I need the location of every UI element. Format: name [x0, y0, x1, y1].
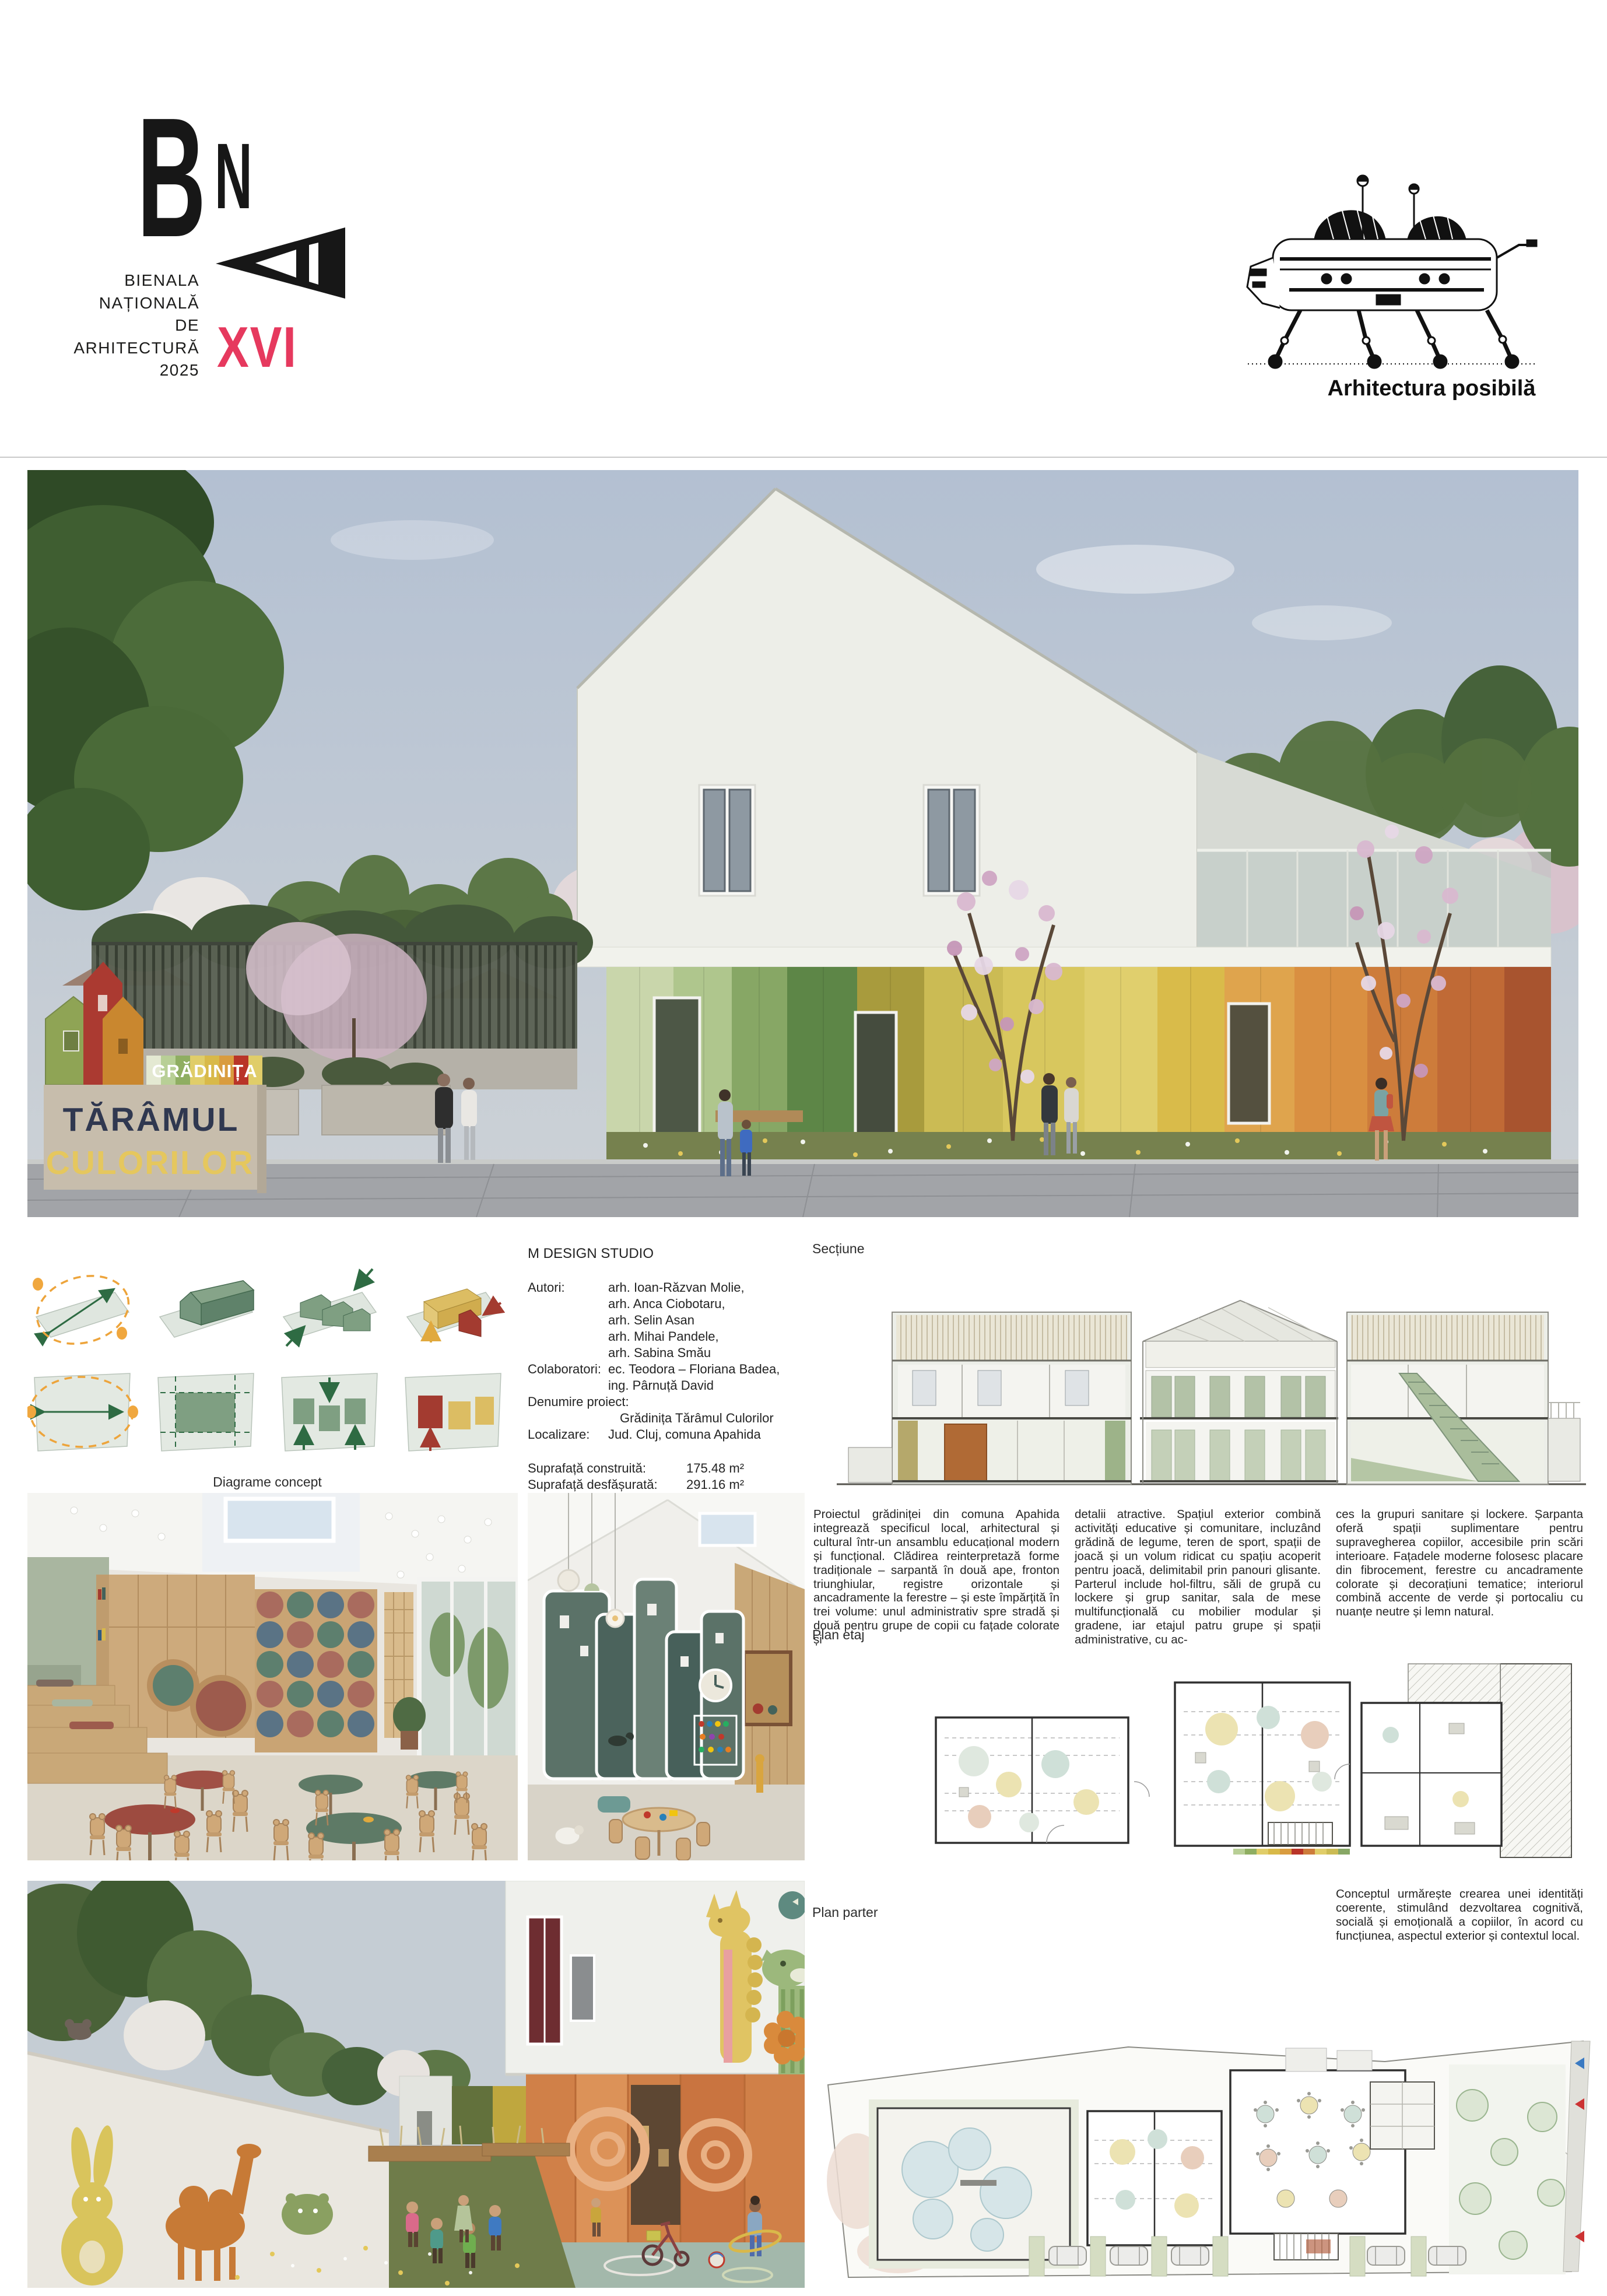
metric-label: Suprafață construită:	[528, 1460, 686, 1477]
diagram-axon-3	[283, 1269, 376, 1346]
biennale-line: NAȚIONALĂ	[70, 292, 199, 315]
biennale-line: DE	[70, 314, 199, 337]
authors-label: Autori:	[528, 1280, 608, 1361]
diagram-plan-2	[158, 1373, 254, 1451]
site-plan-caption: Plan parter	[812, 1905, 878, 1920]
floor-plan-caption: Plan etaj	[812, 1627, 865, 1643]
author: arh. Mihai Pandele,	[608, 1328, 811, 1345]
collaborators-label: Colaboratori:	[528, 1361, 608, 1394]
logo-letter-n: N	[215, 129, 252, 223]
location-value: Jud. Cluj, comuna Apahida	[608, 1426, 811, 1443]
location-label: Localizare:	[528, 1426, 608, 1443]
floor-plan-drawing	[907, 1647, 1583, 1875]
edition-number: XVI	[217, 318, 297, 376]
theme-caption: Arhitectura posibilă	[1286, 376, 1577, 401]
author: arh. Anca Ciobotaru,	[608, 1296, 811, 1312]
sign-culorilor: CULORILOR	[46, 1144, 254, 1182]
biennale-title: BIENALA NAȚIONALĂ DE ARHITECTURĂ 2025	[70, 269, 199, 382]
biennale-year: 2025	[70, 359, 199, 382]
planter-box	[369, 2146, 491, 2161]
collaborator: ing. Pârnuță David	[608, 1377, 811, 1394]
plan-colour-strip	[1233, 1849, 1350, 1855]
metric-value: 291.16 m²	[686, 1477, 744, 1493]
interior-render-playroom	[528, 1493, 805, 1860]
section-caption: Secțiune	[812, 1241, 865, 1257]
author: arh. Sabina Smău	[608, 1345, 811, 1361]
diagram-plan-4	[405, 1373, 501, 1451]
body-text-col3: ces la grupuri sanitare și lockere. Șarp…	[1336, 1508, 1583, 1619]
diagram-axon-1	[29, 1266, 137, 1354]
author: arh. Selin Asan	[608, 1312, 811, 1328]
diagrams-caption: Diagrame concept	[27, 1474, 507, 1490]
logo-letter-a-icon	[215, 227, 349, 301]
project-label: Denumire proiect:	[528, 1394, 811, 1410]
competition-board: B N BIENALA NAȚIONALĂ DE ARHITECTURĂ 202…	[0, 0, 1607, 2296]
project-name: Grădinița Tărâmul Culorilor	[528, 1410, 811, 1426]
metric-label: Suprafață desfășurată:	[528, 1477, 686, 1493]
sign-taramul: TĂRÂMUL	[63, 1100, 240, 1138]
studio-name: M DESIGN STUDIO	[528, 1246, 811, 1262]
logo-letter-b: B	[137, 92, 206, 262]
body-text-col2: detalii atractive. Spațiul exterior comb…	[1075, 1508, 1321, 1647]
concept-text: Conceptul urmărește crearea unei identit…	[1336, 1887, 1583, 1943]
biennale-line: ARHITECTURĂ	[70, 337, 199, 360]
section-drawing	[825, 1283, 1598, 1493]
collaborator: ec. Teodora – Floriana Badea,	[608, 1361, 811, 1377]
diagram-plan-3	[282, 1373, 377, 1451]
courtyard-render	[27, 1881, 805, 2288]
diagram-axon-4	[407, 1289, 501, 1342]
hippo-silhouette	[282, 2193, 333, 2235]
diagram-axon-2	[160, 1281, 254, 1337]
site-plan-drawing	[813, 2006, 1598, 2288]
sign-gradinita: GRĂDINIȚA	[152, 1061, 257, 1081]
interior-render-dining	[27, 1493, 518, 1860]
author: arh. Ioan-Răzvan Molie,	[608, 1280, 811, 1296]
divider-line	[0, 457, 1607, 458]
diagram-plan-1	[27, 1373, 138, 1451]
hero-render: GRĂDINIȚA TĂRÂMUL CULORILOR	[27, 470, 1578, 1217]
body-text-col1: Proiectul grădiniței din comuna Apahida …	[813, 1508, 1059, 1647]
metric-value: 175.48 m²	[686, 1460, 744, 1477]
courtyard-building	[506, 1881, 805, 2242]
biennale-line: BIENALA	[70, 269, 199, 292]
concept-diagrams	[27, 1254, 507, 1464]
walking-machine-icon	[1239, 170, 1542, 374]
